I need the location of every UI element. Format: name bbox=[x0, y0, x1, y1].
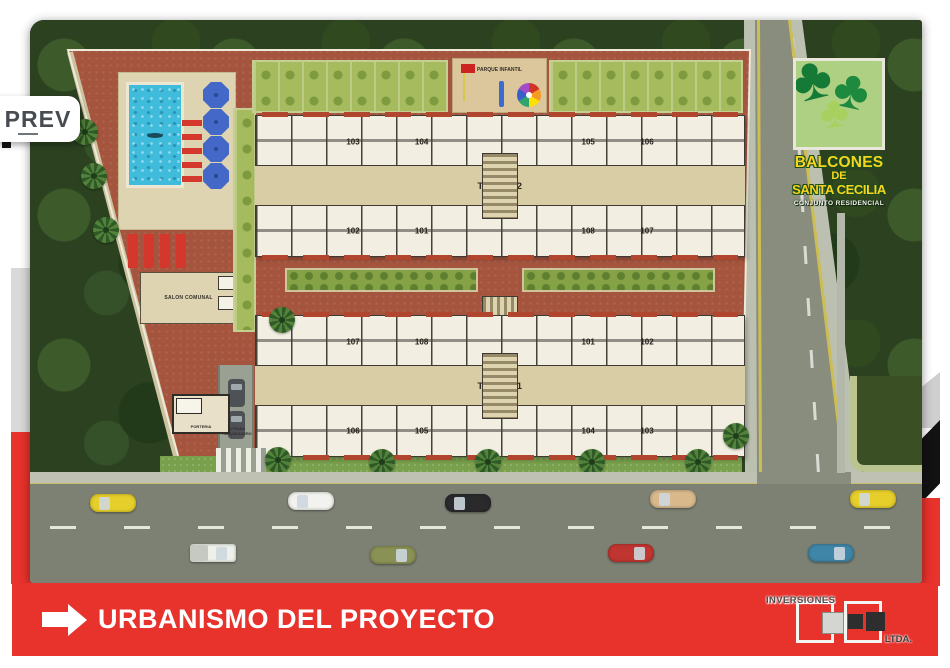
hedge-strip-vertical bbox=[233, 108, 256, 332]
unit-number: 102 bbox=[346, 227, 359, 236]
logo-square-light bbox=[822, 612, 844, 634]
side-road-edge-line-left bbox=[757, 20, 762, 472]
pool-umbrella bbox=[203, 136, 229, 162]
playground-carousel-icon bbox=[517, 83, 541, 107]
playground-label: PARQUE INFANTIL bbox=[453, 67, 546, 73]
sign-clover-logo: ♣ ♣ ♣ bbox=[793, 58, 885, 150]
prev-label: PREV bbox=[0, 106, 71, 133]
swimming-pool bbox=[126, 82, 184, 188]
prev-underline bbox=[18, 133, 38, 136]
logo-square-dark bbox=[866, 612, 885, 631]
parking-entrance-label: ENTRADA PARQUEADERO bbox=[222, 427, 250, 436]
company-name: INVERSIONES bbox=[766, 595, 835, 606]
pool-umbrella bbox=[203, 82, 229, 108]
parked-car bbox=[228, 379, 245, 407]
car bbox=[650, 490, 696, 508]
parked-car bbox=[228, 411, 245, 439]
street-cars bbox=[30, 20, 922, 583]
car bbox=[190, 544, 236, 562]
gatehouse-room bbox=[176, 398, 202, 414]
sidewalk bbox=[30, 472, 922, 484]
car bbox=[445, 494, 491, 512]
arrow-right-icon bbox=[42, 612, 68, 627]
playground-flag-icon bbox=[461, 64, 475, 73]
hedge-strip-top-left bbox=[252, 60, 448, 113]
unit-number: 102 bbox=[640, 338, 653, 347]
unit-number: 101 bbox=[582, 338, 595, 347]
tower-torre-1: TORRE 1 107 108 101 102 106 105 104 103 bbox=[255, 315, 745, 457]
car bbox=[850, 490, 896, 508]
car bbox=[608, 544, 654, 562]
gatehouse-label: PORTERIA bbox=[174, 424, 228, 429]
unit-number: 104 bbox=[582, 427, 595, 436]
palm-tree-icon bbox=[93, 217, 119, 243]
unit-number: 103 bbox=[640, 427, 653, 436]
gatehouse: PORTERIA bbox=[172, 394, 230, 434]
car bbox=[370, 546, 416, 564]
pool-umbrella bbox=[203, 109, 229, 135]
tower-torre-2: TORRE 2 103 104 105 106 102 101 108 107 bbox=[255, 115, 745, 257]
community-hall-room bbox=[218, 296, 236, 310]
unit-number: 107 bbox=[640, 227, 653, 236]
sign-title-line2: DE bbox=[787, 170, 891, 182]
site-plan-render: SALON COMUNAL PARQUE INFANTIL TORRE 2 10… bbox=[30, 20, 922, 583]
playground-pole-icon bbox=[499, 81, 504, 107]
parking-entrance-driveway: ENTRADA PARQUEADERO bbox=[218, 365, 254, 460]
palm-tree-icon bbox=[81, 163, 107, 189]
main-street bbox=[30, 484, 922, 583]
prev-button[interactable]: PREV bbox=[0, 96, 80, 142]
central-planter-left bbox=[285, 268, 478, 292]
community-hall-label: SALON COMUNAL bbox=[164, 295, 212, 301]
sign-title-line1: BALCONES bbox=[787, 154, 891, 172]
hedge-strip-top-right bbox=[549, 60, 743, 113]
unit-number: 108 bbox=[415, 338, 428, 347]
bottom-banner: URBANISMO DEL PROYECTO INVERSIONES LTDA. bbox=[12, 583, 938, 656]
playground: PARQUE INFANTIL bbox=[452, 58, 547, 113]
sun-loungers-row bbox=[128, 234, 186, 268]
logo-square-dark bbox=[848, 614, 863, 629]
side-road-edge-line-right bbox=[788, 20, 846, 472]
unit-number: 104 bbox=[415, 138, 428, 147]
car bbox=[808, 544, 854, 562]
unit-number: 101 bbox=[415, 227, 428, 236]
presentation-slide: SALON COMUNAL PARQUE INFANTIL TORRE 2 10… bbox=[0, 0, 950, 668]
side-road-junction bbox=[757, 472, 851, 484]
unit-number: 105 bbox=[415, 427, 428, 436]
car bbox=[90, 494, 136, 512]
unit-number: 108 bbox=[582, 227, 595, 236]
community-hall-room bbox=[218, 276, 236, 290]
pool-loungers bbox=[182, 116, 202, 182]
clover-icon: ♣ bbox=[829, 60, 875, 120]
unit-number: 106 bbox=[346, 427, 359, 436]
unit-number: 105 bbox=[582, 138, 595, 147]
clover-icon: ♣ bbox=[819, 90, 851, 136]
company-logo: INVERSIONES LTDA. bbox=[766, 595, 912, 647]
torre-1-stair-core bbox=[482, 353, 518, 419]
torre-2-stair-core bbox=[482, 153, 518, 219]
unit-number: 107 bbox=[346, 338, 359, 347]
company-suffix: LTDA. bbox=[885, 634, 912, 645]
car bbox=[288, 492, 334, 510]
corner-lawn-block bbox=[850, 376, 922, 472]
unit-number: 106 bbox=[640, 138, 653, 147]
palms-layer bbox=[30, 20, 922, 583]
unit-number: 103 bbox=[346, 138, 359, 147]
central-planter-right bbox=[522, 268, 715, 292]
pool-umbrella bbox=[203, 163, 229, 189]
banner-title: URBANISMO DEL PROYECTO bbox=[98, 604, 495, 635]
